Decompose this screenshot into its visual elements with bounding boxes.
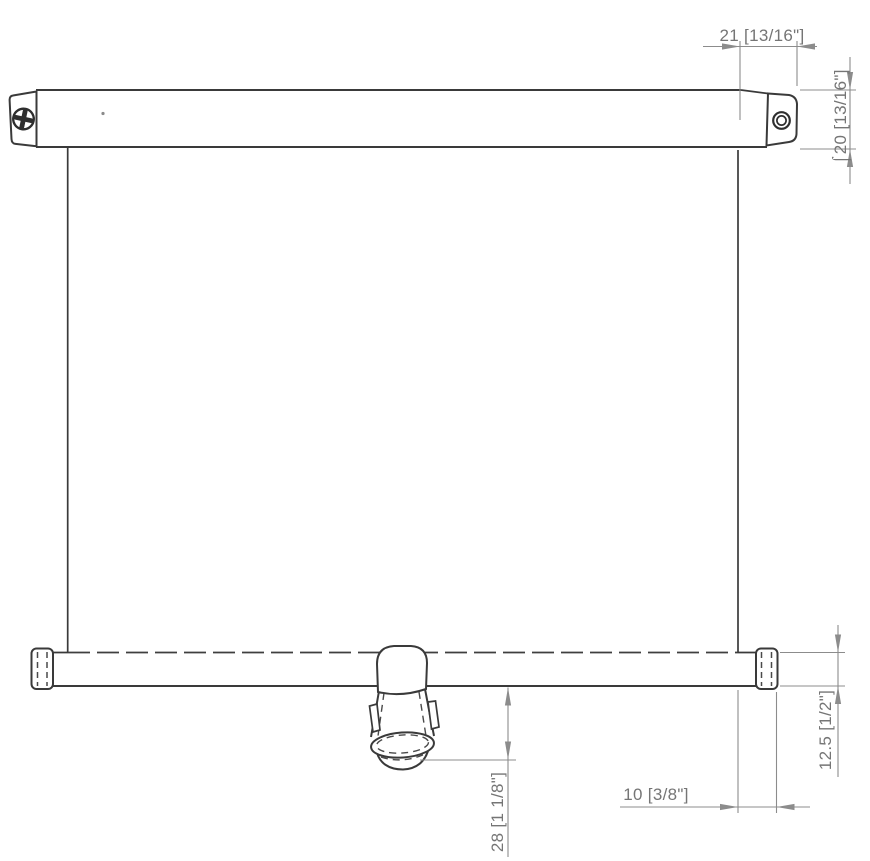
- roller-shade-drawing: 21 [13/16"] ⌠20 [13/16"] 12.5 [1/2"] 10 …: [0, 0, 870, 861]
- dimension-bottom-cap-overhang: 10 [3/8"]: [620, 690, 810, 813]
- tube-surface-mark: [101, 112, 104, 115]
- dimension-bottom-bar-height: 12.5 [1/2"]: [780, 625, 845, 777]
- arrowhead: [505, 688, 511, 706]
- arrowhead: [835, 635, 841, 653]
- technical-drawing-sheet: 21 [13/16"] ⌠20 [13/16"] 12.5 [1/2"] 10 …: [0, 0, 870, 861]
- dimension-label: ⌠20 [13/16"]: [831, 69, 852, 165]
- left-hem-cap-outline: [32, 649, 54, 690]
- arrowhead: [777, 804, 795, 810]
- top-bar-right-end-cap: [767, 94, 798, 146]
- bottom-bar-left-end-cap: [32, 649, 54, 690]
- arrowhead: [505, 742, 511, 760]
- right-hem-cap-outline: [756, 649, 778, 690]
- screw-slot-vertical: [22, 111, 25, 127]
- top-bar-body: [36, 90, 768, 147]
- dimension-label: 12.5 [1/2"]: [816, 690, 835, 770]
- dimension-label: 10 [3/8"]: [623, 785, 688, 804]
- fabric-panel: [68, 148, 738, 652]
- bottom-bar-right-end-cap: [756, 649, 778, 690]
- arrowhead: [720, 804, 738, 810]
- dimension-label: 21 [13/16"]: [720, 26, 805, 45]
- knob-dome: [377, 646, 427, 694]
- top-bar: [36, 90, 768, 147]
- dimension-label: 28 [1 1/8"]: [488, 772, 507, 852]
- dimension-tube-diameter: ⌠20 [13/16"]: [800, 57, 856, 184]
- end-cap-hole-outer: [773, 112, 790, 129]
- top-bar-left-end-cap: [10, 92, 37, 147]
- arrowhead: [835, 686, 841, 704]
